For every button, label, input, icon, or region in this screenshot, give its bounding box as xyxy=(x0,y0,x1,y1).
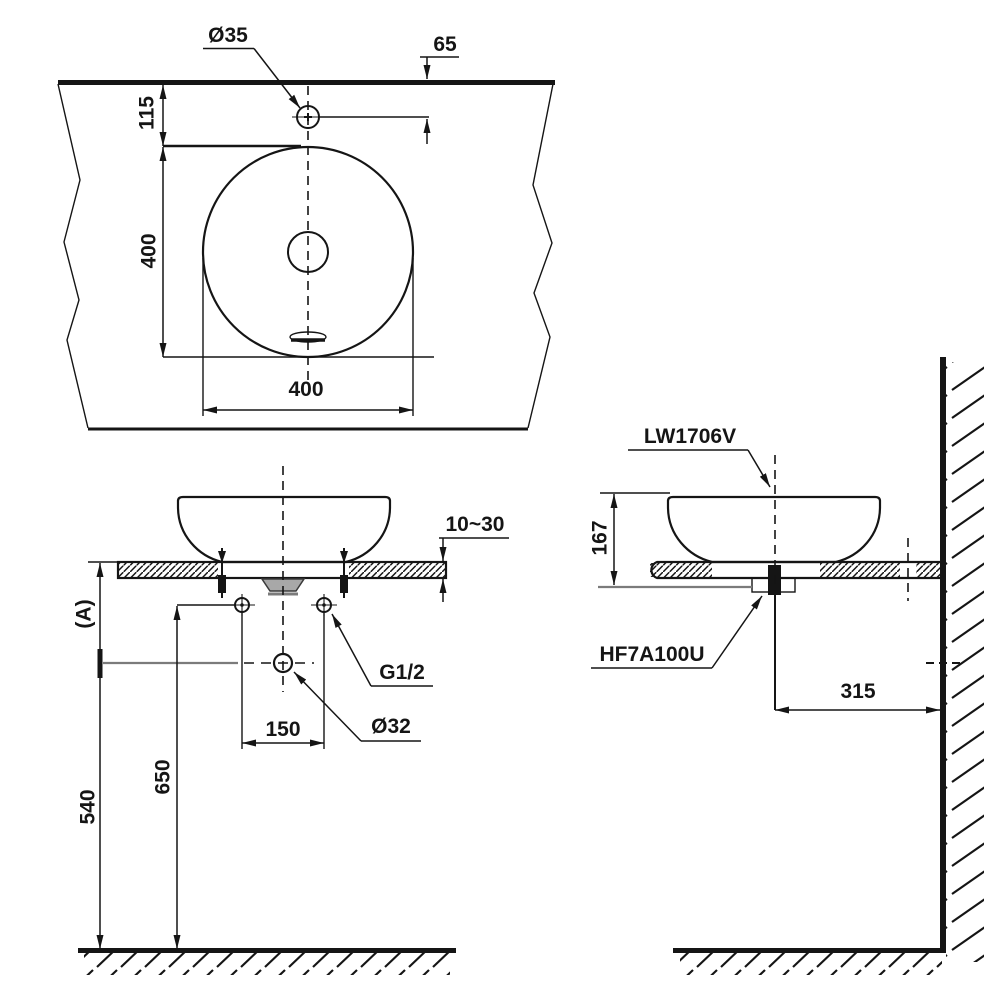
counter-thickness-label: 10~30 xyxy=(446,513,505,536)
drain-model-label: HF7A100U xyxy=(599,643,704,666)
dim-650-label: 650 xyxy=(152,759,175,794)
drain-dia-leader xyxy=(294,672,361,741)
side-counter-hatch-mid xyxy=(820,563,900,577)
dim-315-label: 315 xyxy=(840,680,875,703)
floor-hatch-side xyxy=(680,953,942,975)
dim-400h-label: 400 xyxy=(288,378,323,401)
dim-A-label: (A) xyxy=(73,599,96,628)
supply-thread-label: G1/2 xyxy=(379,661,425,684)
floor-line-front xyxy=(78,948,456,953)
faucet-dia-label: Ø35 xyxy=(208,24,248,47)
mounting-bolt-left xyxy=(218,548,226,598)
counter-break-line-left xyxy=(58,84,88,428)
floor-hatch-front xyxy=(84,953,450,975)
dim-540-label: 540 xyxy=(77,789,100,824)
counter-break-line-right xyxy=(528,84,553,428)
supply-hole-right xyxy=(311,594,337,616)
hole-offset-label: 65 xyxy=(433,33,457,56)
drain-dia-label: Ø32 xyxy=(371,715,411,738)
side-counter-hatch-right xyxy=(916,563,940,577)
drawing-canvas: Ø35 65 115 400 400 xyxy=(0,0,1000,1000)
dim-400v-label: 400 xyxy=(138,233,161,268)
wall-hatch xyxy=(946,362,984,962)
side-view: 167 LW1706V HF7A100U 315 xyxy=(589,357,985,975)
wall-line xyxy=(940,357,946,953)
floor-line-side xyxy=(673,948,945,953)
drain-model-leader xyxy=(712,596,762,668)
supply-thread-leader xyxy=(332,614,371,686)
faucet-dia-leader xyxy=(254,49,300,109)
basin-model-label: LW1706V xyxy=(644,425,736,448)
top-view: Ø35 65 115 400 400 xyxy=(58,24,555,429)
counter-front-edge xyxy=(58,80,555,85)
side-counter-hatch-left xyxy=(650,563,712,577)
counter-hatch-right xyxy=(349,563,445,577)
basin-model-leader xyxy=(748,450,770,487)
basin-profile xyxy=(178,497,390,562)
dim-115-label: 115 xyxy=(136,96,159,130)
counter-hatch-left xyxy=(119,563,218,577)
dim-167-label: 167 xyxy=(589,520,612,555)
mounting-bolt-right xyxy=(340,548,348,598)
front-view: 10~30 (A) 540 650 150 G1/2 Ø32 xyxy=(73,466,510,975)
side-basin-profile xyxy=(668,497,880,562)
dim-150-label: 150 xyxy=(265,718,300,741)
installation-drawing: Ø35 65 115 400 400 xyxy=(0,0,1000,1000)
